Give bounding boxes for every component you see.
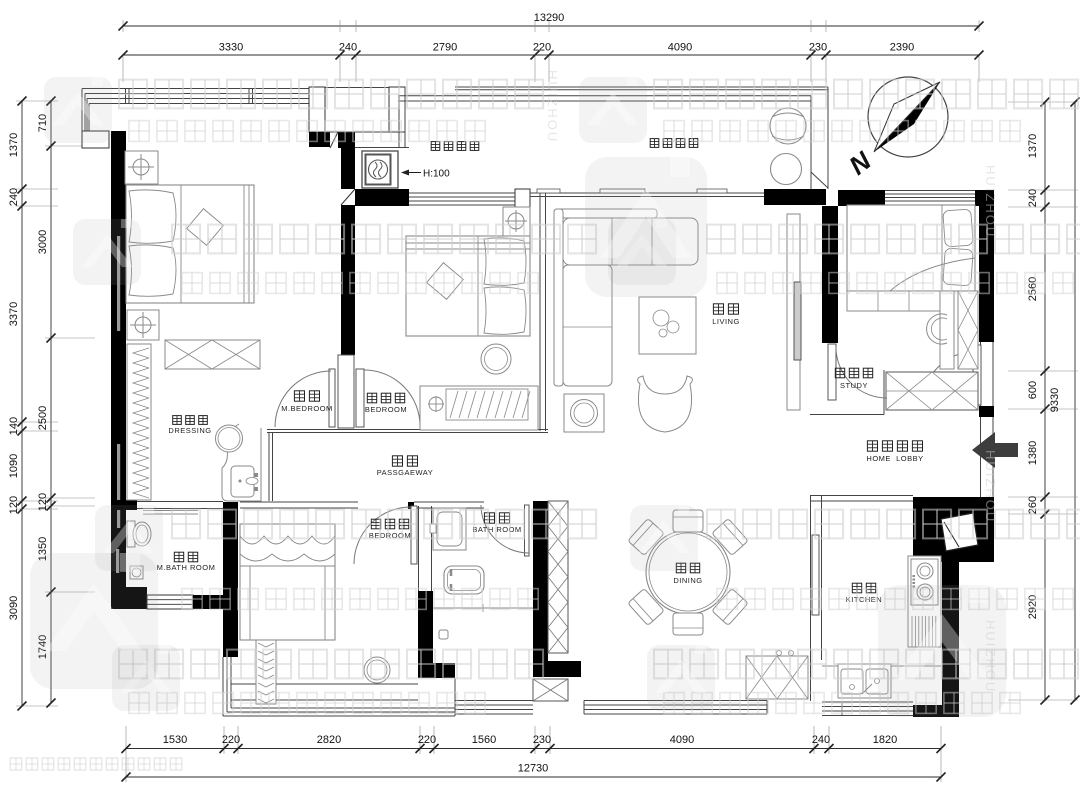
svg-text:DINING: DINING: [673, 576, 702, 585]
svg-text:220: 220: [418, 734, 436, 746]
svg-text:2790: 2790: [433, 42, 457, 54]
svg-text:HUIZHOU: HUIZHOU: [983, 450, 998, 523]
svg-text:240: 240: [339, 42, 357, 54]
svg-text:H:100: H:100: [423, 169, 450, 180]
svg-text:120: 120: [8, 496, 20, 514]
svg-text:9330: 9330: [1049, 388, 1061, 412]
svg-text:220: 220: [533, 42, 551, 54]
svg-text:3090: 3090: [8, 596, 20, 620]
svg-text:PASSGAEWAY: PASSGAEWAY: [377, 468, 434, 477]
svg-text:4090: 4090: [668, 42, 692, 54]
svg-text:3330: 3330: [219, 42, 243, 54]
svg-text:4090: 4090: [670, 734, 694, 746]
svg-text:3000: 3000: [37, 230, 49, 254]
svg-text:220: 220: [222, 734, 240, 746]
svg-text:1530: 1530: [163, 734, 187, 746]
svg-text:2390: 2390: [890, 42, 914, 54]
svg-text:3370: 3370: [8, 302, 20, 326]
svg-text:LIVING: LIVING: [712, 317, 740, 326]
svg-text:BATH ROOM: BATH ROOM: [472, 525, 521, 534]
svg-text:140: 140: [8, 417, 20, 435]
svg-text:M.BEDROOM: M.BEDROOM: [281, 404, 333, 413]
svg-text:2560: 2560: [1027, 277, 1039, 301]
svg-text:1090: 1090: [8, 454, 20, 478]
svg-text:DRESSING: DRESSING: [168, 426, 211, 435]
svg-text:HUIZHOU: HUIZHOU: [983, 620, 998, 693]
svg-text:120: 120: [37, 493, 49, 511]
svg-text:260: 260: [1027, 496, 1039, 514]
svg-text:240: 240: [1027, 189, 1039, 207]
svg-text:HUIZHOU: HUIZHOU: [983, 165, 998, 238]
svg-text:1370: 1370: [8, 133, 20, 157]
svg-text:12730: 12730: [518, 763, 549, 775]
svg-text:STUDY: STUDY: [840, 381, 868, 390]
svg-text:1380: 1380: [1027, 441, 1039, 465]
svg-text:240: 240: [8, 188, 20, 206]
svg-text:1370: 1370: [1027, 134, 1039, 158]
svg-text:2820: 2820: [317, 734, 341, 746]
svg-text:HOME LOBBY: HOME LOBBY: [866, 454, 923, 463]
svg-text:M.BATH ROOM: M.BATH ROOM: [157, 563, 216, 572]
svg-text:600: 600: [1027, 381, 1039, 399]
svg-text:1560: 1560: [472, 734, 496, 746]
svg-text:2500: 2500: [37, 406, 49, 430]
svg-text:HUIZHOU: HUIZHOU: [545, 70, 560, 143]
svg-text:BEDROOM: BEDROOM: [365, 405, 407, 414]
svg-text:240: 240: [812, 734, 830, 746]
svg-text:230: 230: [809, 42, 827, 54]
svg-text:230: 230: [533, 734, 551, 746]
svg-text:13290: 13290: [534, 12, 565, 24]
svg-text:1820: 1820: [873, 734, 897, 746]
